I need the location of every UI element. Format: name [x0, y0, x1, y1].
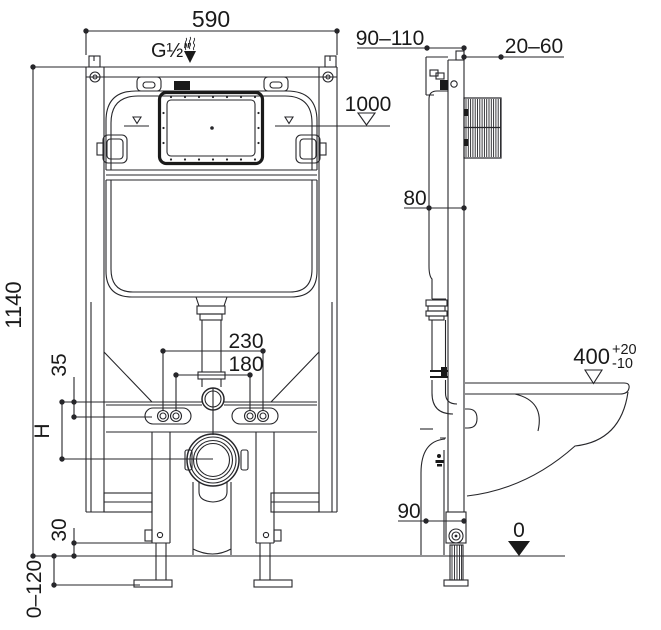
dim-bolt-outer: 230 [228, 330, 263, 353]
dim-leg-exposed: 30 [48, 518, 71, 541]
front-cistern [97, 77, 326, 297]
front-flush-pipe [196, 297, 227, 435]
pipe-logo-mark [437, 454, 441, 458]
dim-ref-height: 1000 [345, 93, 392, 116]
dim-floor-level: 0 [513, 519, 525, 542]
dim-inlet-label: G½″ [151, 40, 190, 62]
dimension-dots [30, 28, 503, 587]
dim-plate-offset: 35 [48, 353, 71, 376]
dim-pan-height: 400 [573, 344, 610, 369]
dim-outlet-height: H [31, 423, 54, 438]
installation-drawing: 590 G½″ 1140 90–110 20–60 1000 80 230 18… [0, 0, 661, 630]
dim-pan-tol-down: -10 [612, 356, 633, 372]
toilet-bowl-profile [465, 383, 629, 496]
front-rail-and-outlet [106, 402, 317, 555]
dim-bolt-inner: 180 [228, 353, 263, 376]
wall-finish-hatch [464, 98, 501, 158]
dim-bottom-depth: 90 [397, 500, 420, 523]
water-level-icon [133, 117, 141, 124]
flush-plate-opening [160, 93, 263, 164]
floor-datum-icon [508, 541, 530, 556]
dim-top-width: 590 [192, 6, 230, 32]
drawing-canvas: 590 G½″ 1140 90–110 20–60 1000 80 230 18… [0, 0, 661, 630]
plate-center-dot [210, 126, 214, 130]
filler-valve-mark [174, 81, 190, 90]
dim-tank-depth: 80 [403, 187, 426, 210]
datum-triangle-icon [585, 370, 602, 384]
water-level-icon [285, 117, 293, 124]
front-legs [104, 432, 319, 587]
dim-overall-height: 1140 [1, 281, 26, 328]
dim-depth-range: 90–110 [356, 27, 425, 50]
dim-foot-range: 0–120 [23, 560, 46, 618]
dim-wall-range: 20–60 [505, 35, 563, 58]
bracket-bolt-mark [440, 80, 448, 90]
